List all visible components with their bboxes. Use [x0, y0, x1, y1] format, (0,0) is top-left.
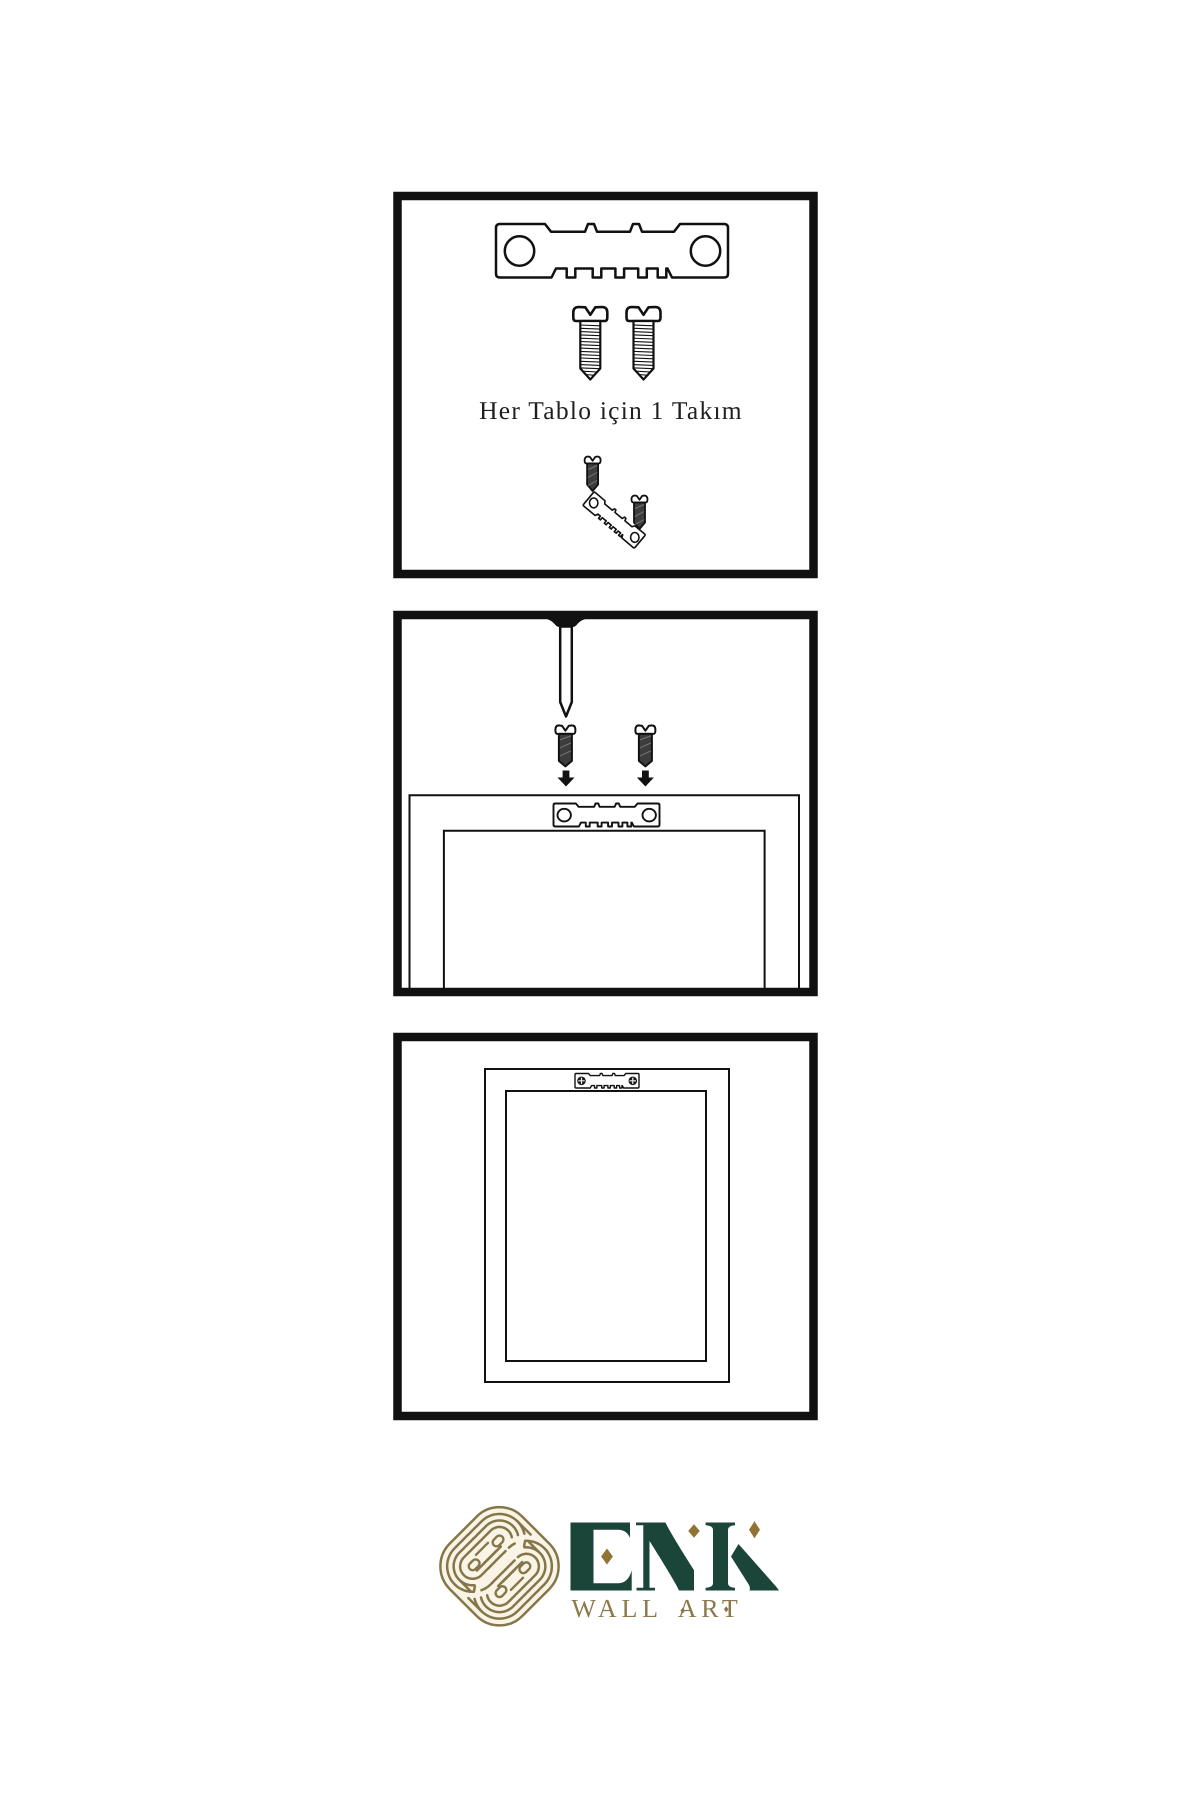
svg-text:WALL ART: WALL ART — [571, 1594, 742, 1623]
svg-text:Her Tablo için 1 Takım: Her Tablo için 1 Takım — [479, 396, 743, 425]
